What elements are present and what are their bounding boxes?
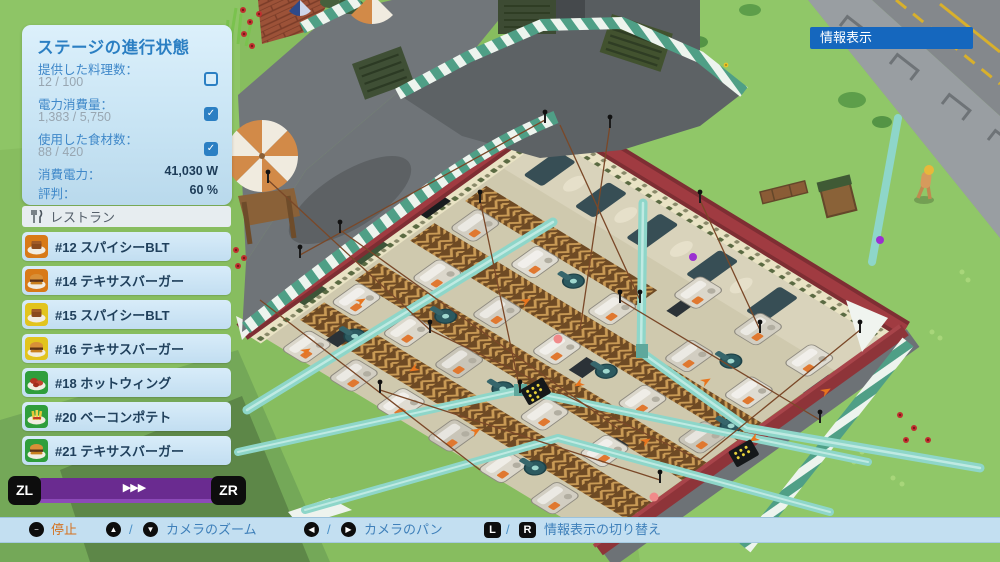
power-draw-label: 消費電力： <box>38 164 101 183</box>
order-row[interactable]: #15 スパイシーBLT <box>22 300 231 329</box>
wings-icon <box>25 371 48 394</box>
sandwich-icon <box>25 303 48 326</box>
restaurant-header-label: レストラン <box>50 207 115 226</box>
burger-icon <box>25 337 48 360</box>
stage-progress-panel: ステージの進行状態 提供した料理数： 12 / 100 電力消費量： 1,383… <box>22 25 232 205</box>
order-row[interactable]: #12 スパイシーBLT <box>22 232 231 261</box>
control-bar: − 停止 ▲ / ▼ カメラのズーム ◀ / ▶ カメラのパン L / R 情報… <box>0 517 1000 543</box>
order-label: #14 テキサスバーガー <box>55 271 184 290</box>
reputation-label: 評判： <box>38 183 76 202</box>
power-draw-value: 41,030 W <box>164 164 218 178</box>
camera-zoom-label: カメラのズーム <box>166 518 257 542</box>
order-row[interactable]: #21 テキサスバーガー <box>22 436 231 465</box>
stop-label: 停止 <box>51 518 77 542</box>
minus-button-icon: − <box>29 522 44 537</box>
order-row[interactable]: #18 ホットウィング <box>22 368 231 397</box>
dpad-left-icon: ◀ <box>304 522 319 537</box>
game-screen: { "hud": { "progress_panel": { "title": … <box>0 0 1000 562</box>
order-label: #20 ベーコンポテト <box>55 407 171 426</box>
fries-icon <box>25 405 48 428</box>
l-button-icon: L <box>484 522 501 538</box>
ingredients-used-checkbox[interactable]: ✓ <box>204 142 218 156</box>
order-label: #18 ホットウィング <box>55 373 171 392</box>
separator: / <box>327 518 331 542</box>
camera-pan-label: カメラのパン <box>364 518 443 542</box>
order-row[interactable]: #20 ベーコンポテト <box>22 402 231 431</box>
dpad-down-icon: ▼ <box>143 522 158 537</box>
dishes-served-value: 12 / 100 <box>38 75 83 89</box>
burger-icon <box>25 439 48 462</box>
sandwich-icon <box>25 235 48 258</box>
power-consumption-checkbox[interactable]: ✓ <box>204 107 218 121</box>
ingredients-used-value: 88 / 420 <box>38 145 83 159</box>
order-label: #16 テキサスバーガー <box>55 339 184 358</box>
fast-forward-icon: ▶▶▶ <box>123 482 145 494</box>
dpad-up-icon: ▲ <box>106 522 121 537</box>
order-label: #15 スパイシーBLT <box>55 305 170 324</box>
dpad-right-icon: ▶ <box>341 522 356 537</box>
order-row[interactable]: #14 テキサスバーガー <box>22 266 231 295</box>
panel-title: ステージの進行状態 <box>37 34 190 58</box>
restaurant-header: レストラン <box>22 206 231 227</box>
separator: / <box>129 518 133 542</box>
order-label: #12 スパイシーBLT <box>55 237 170 256</box>
zl-button[interactable]: ZL <box>8 476 41 505</box>
restaurant-order-panel: レストラン #12 スパイシーBLT #14 テキサスバーガー #15 スパイシ… <box>22 206 231 465</box>
info-toggle-label: 情報表示の切り替え <box>544 518 661 542</box>
order-row[interactable]: #16 テキサスバーガー <box>22 334 231 363</box>
order-label: #21 テキサスバーガー <box>55 441 184 460</box>
speed-bar[interactable]: ▶▶▶ <box>36 478 232 503</box>
zr-button[interactable]: ZR <box>211 476 246 505</box>
burger-icon <box>25 269 48 292</box>
separator: / <box>506 518 510 542</box>
info-display-button[interactable]: 情報表示 <box>810 27 973 49</box>
reputation-value: 60 % <box>190 183 219 197</box>
power-consumption-value: 1,383 / 5,750 <box>38 110 111 124</box>
r-button-icon: R <box>519 522 536 538</box>
dishes-served-checkbox[interactable] <box>204 72 218 86</box>
fork-knife-icon <box>30 210 43 223</box>
